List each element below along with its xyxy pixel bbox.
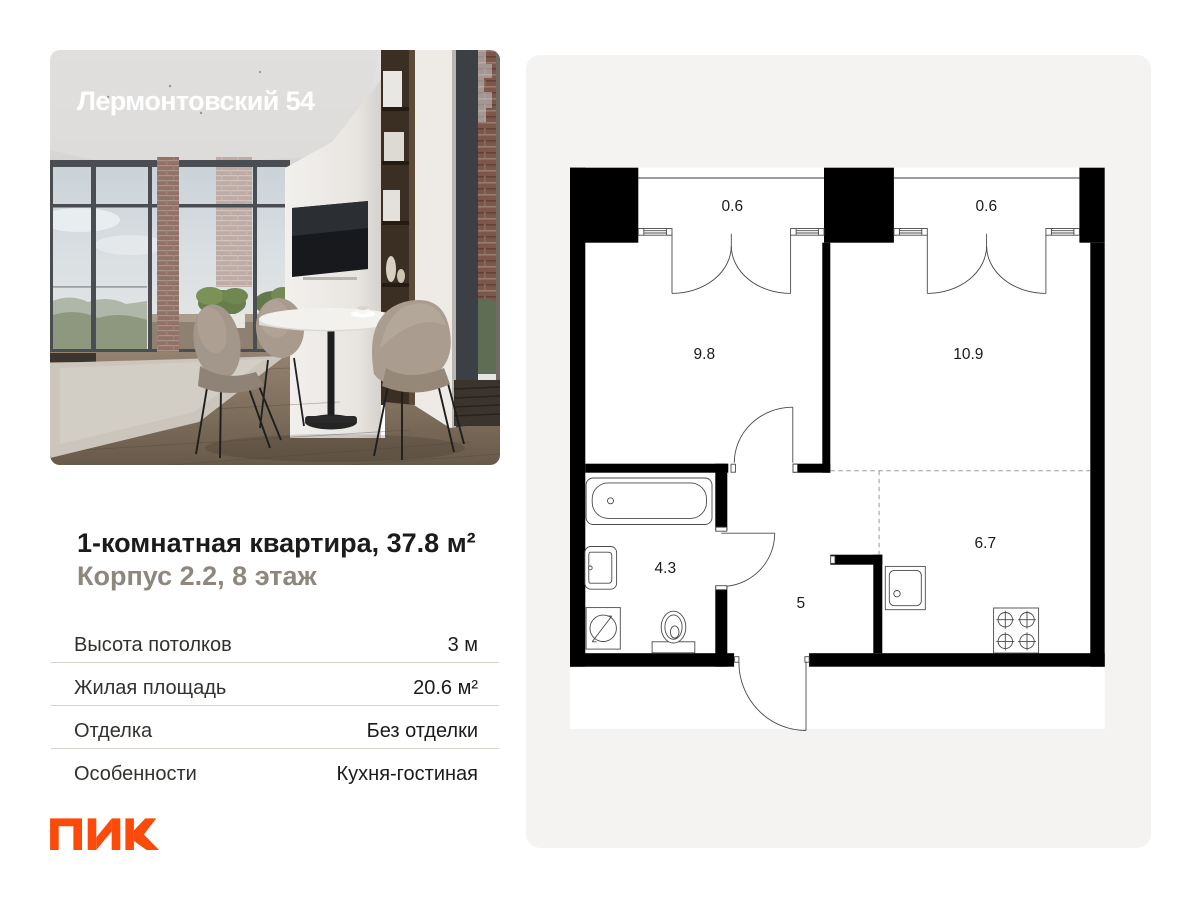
svg-text:9.8: 9.8 <box>693 346 715 363</box>
svg-text:10.9: 10.9 <box>953 346 983 363</box>
svg-text:0.6: 0.6 <box>975 198 997 215</box>
svg-text:0.6: 0.6 <box>721 198 743 215</box>
svg-text:5: 5 <box>796 595 805 612</box>
svg-text:6.7: 6.7 <box>974 535 996 552</box>
svg-text:4.3: 4.3 <box>654 560 676 577</box>
svg-text:Лермонтовский 54: Лермонтовский 54 <box>77 86 315 116</box>
